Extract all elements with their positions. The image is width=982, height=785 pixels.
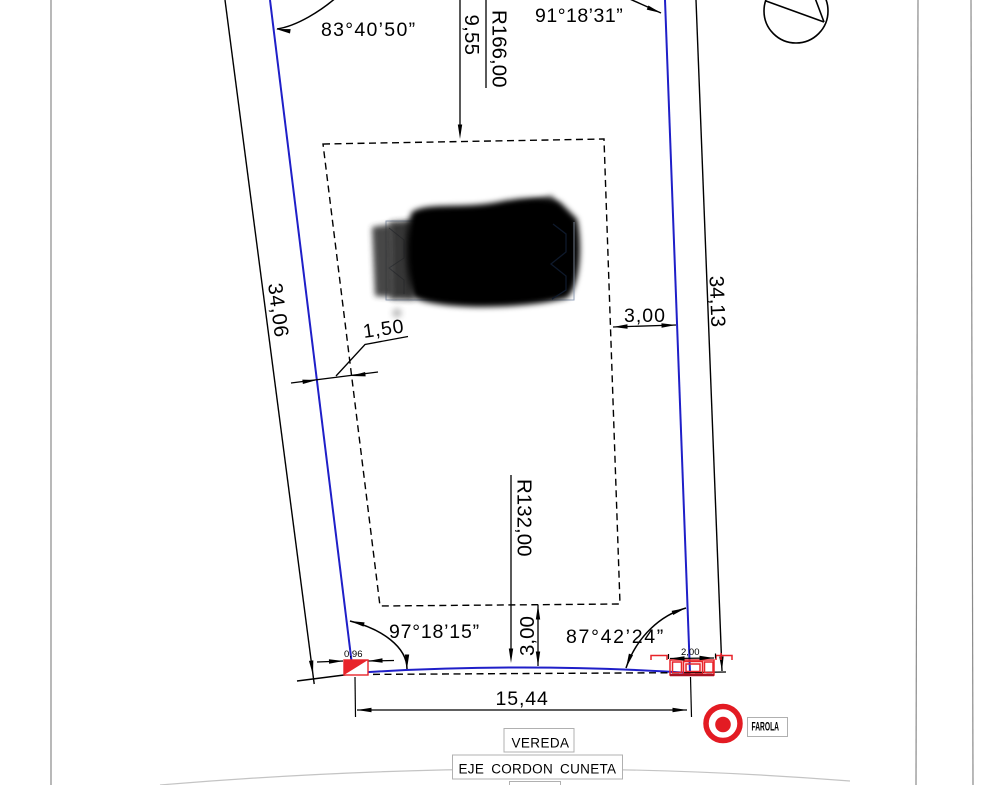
svg-text:VEREDA: VEREDA	[512, 736, 570, 751]
svg-text:2,00: 2,00	[681, 647, 700, 658]
svg-text:97°18’15”: 97°18’15”	[389, 621, 480, 643]
svg-text:EJE CORDON CUNETA: EJE CORDON CUNETA	[459, 762, 617, 777]
svg-text:91°18’31”: 91°18’31”	[535, 5, 623, 27]
svg-text:34,13: 34,13	[705, 275, 730, 327]
svg-text:15,44: 15,44	[496, 688, 549, 710]
svg-text:83°40’50”: 83°40’50”	[321, 19, 416, 41]
svg-text:9,55: 9,55	[460, 15, 483, 56]
svg-text:R132,00: R132,00	[513, 479, 536, 557]
svg-text:87°42’24”: 87°42’24”	[566, 626, 665, 648]
svg-text:3,00: 3,00	[624, 305, 666, 327]
svg-text:R166,00: R166,00	[488, 10, 511, 88]
svg-text:3,00: 3,00	[516, 616, 539, 656]
svg-text:1,50: 1,50	[362, 315, 406, 343]
svg-text:0,96: 0,96	[344, 649, 363, 660]
svg-text:FAROLA: FAROLA	[752, 722, 780, 734]
